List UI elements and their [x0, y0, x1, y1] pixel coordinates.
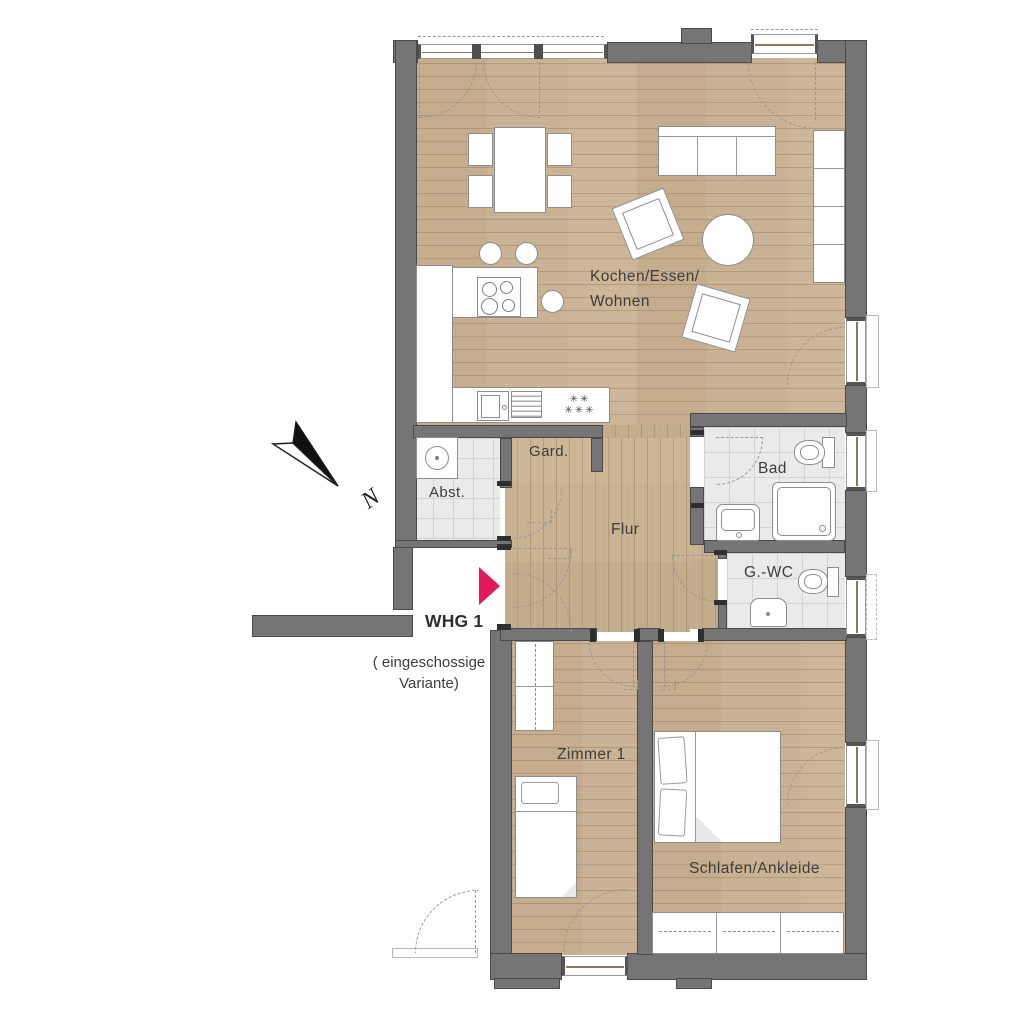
wardrobe: [652, 912, 844, 954]
freezer-symbol-row: ✳✳: [558, 394, 602, 405]
wall-segment: [637, 628, 660, 641]
double-bed: [654, 731, 781, 843]
unit-label: WHG 1: [425, 611, 483, 632]
door-post: [714, 550, 727, 555]
kitchen-sink: [477, 391, 509, 421]
wall-segment: [627, 953, 867, 980]
wall-segment: [252, 615, 413, 637]
door-post: [698, 629, 704, 642]
wall-segment: [690, 413, 847, 427]
wall-segment: [395, 40, 417, 547]
blanket-fold: [696, 816, 722, 842]
sofa: [658, 126, 776, 176]
kitchen-counter: [416, 265, 453, 423]
wall-segment: [393, 547, 413, 610]
shower: [772, 482, 836, 541]
window-door: [562, 956, 628, 976]
door-post: [658, 629, 664, 642]
wall-segment: [607, 42, 752, 63]
room-label-zimmer1: Zimmer 1: [557, 746, 626, 764]
dining-table: [494, 127, 546, 213]
door-post: [497, 481, 511, 486]
room-label-gwc: G.-WC: [744, 564, 793, 582]
bar-stool: [515, 242, 538, 265]
dining-chair: [468, 133, 493, 166]
junction-symbol: [624, 680, 638, 690]
window-sill: [866, 740, 879, 810]
window-door: [846, 318, 866, 385]
window: [846, 577, 866, 637]
roof-overhang-line: [751, 29, 818, 32]
window: [751, 34, 818, 54]
bar-stool: [541, 290, 564, 313]
junction-symbol: [548, 548, 571, 559]
window-sill: [866, 315, 879, 388]
door-post: [691, 503, 704, 508]
coffee-table: [702, 214, 754, 266]
roof-overhang-line: [418, 36, 604, 39]
floor-plan: ✳✳ ✳✳✳: [0, 0, 1024, 1024]
door-leaf: [475, 890, 478, 953]
freezer-symbol: ✳✳ ✳✳✳: [558, 394, 602, 416]
toilet: [827, 567, 839, 597]
freezer-symbol-row: ✳✳✳: [558, 405, 602, 416]
dining-chair: [547, 133, 572, 166]
door-post: [590, 629, 596, 642]
bar-stool: [479, 242, 502, 265]
door-post: [497, 624, 511, 630]
wc-sink: [750, 598, 787, 627]
door-swing-arc: [415, 890, 478, 953]
wall-segment: [845, 385, 867, 433]
entrance-arrow-icon: [479, 567, 500, 605]
door-post: [691, 430, 704, 435]
room-label-gard: Gard.: [529, 443, 569, 460]
toilet-bowl: [798, 569, 828, 594]
door-leaf: [539, 62, 542, 118]
dining-chair: [468, 175, 493, 208]
wall-segment: [494, 978, 560, 989]
room-label-living: Kochen/Essen/ Wohnen: [590, 264, 699, 314]
window: [846, 433, 866, 490]
junction-symbol: [527, 510, 552, 523]
door-leaf: [815, 62, 818, 120]
junction-symbol: [662, 680, 676, 690]
washing-machine: [416, 437, 458, 479]
wall-segment: [676, 978, 712, 989]
wall-segment: [591, 438, 603, 472]
door-post: [714, 600, 727, 605]
window: [418, 44, 607, 59]
window-mullion: [534, 44, 543, 59]
window-sill: [866, 574, 877, 640]
sofa-chaise: [813, 130, 845, 283]
window-mullion: [472, 44, 481, 59]
wall-segment: [718, 603, 727, 630]
room-label-abst: Abst.: [429, 484, 465, 501]
wall-segment: [845, 637, 867, 743]
door-post: [497, 544, 511, 550]
floor-flur-passage: [603, 425, 690, 438]
blanket-fold: [562, 883, 576, 897]
wall-segment: [637, 641, 653, 955]
drainboard: [511, 391, 542, 418]
stove: [477, 277, 521, 317]
room-label-bad: Bad: [758, 460, 787, 478]
wall-segment: [690, 487, 704, 545]
wall-segment: [490, 953, 562, 980]
wall-segment: [681, 28, 712, 44]
window-door: [846, 743, 866, 807]
wall-segment: [845, 490, 867, 577]
dining-chair: [547, 175, 572, 208]
toilet-bowl: [794, 440, 825, 465]
bathroom-sink: [716, 504, 760, 541]
door-leaf: [672, 555, 718, 558]
wall-segment: [395, 540, 512, 548]
wall-segment: [702, 628, 847, 641]
door-leaf: [716, 437, 763, 440]
window-sill: [866, 430, 877, 492]
room-label-schlafen: Schlafen/Ankleide: [689, 860, 820, 878]
door-post: [634, 629, 640, 642]
wardrobe: [515, 641, 554, 731]
single-bed: [515, 776, 577, 898]
wall-segment: [845, 40, 867, 318]
door-post: [497, 536, 511, 541]
door-leaf: [419, 62, 422, 118]
room-label-flur: Flur: [611, 521, 639, 539]
unit-note: ( eingeschossige Variante): [354, 652, 504, 694]
